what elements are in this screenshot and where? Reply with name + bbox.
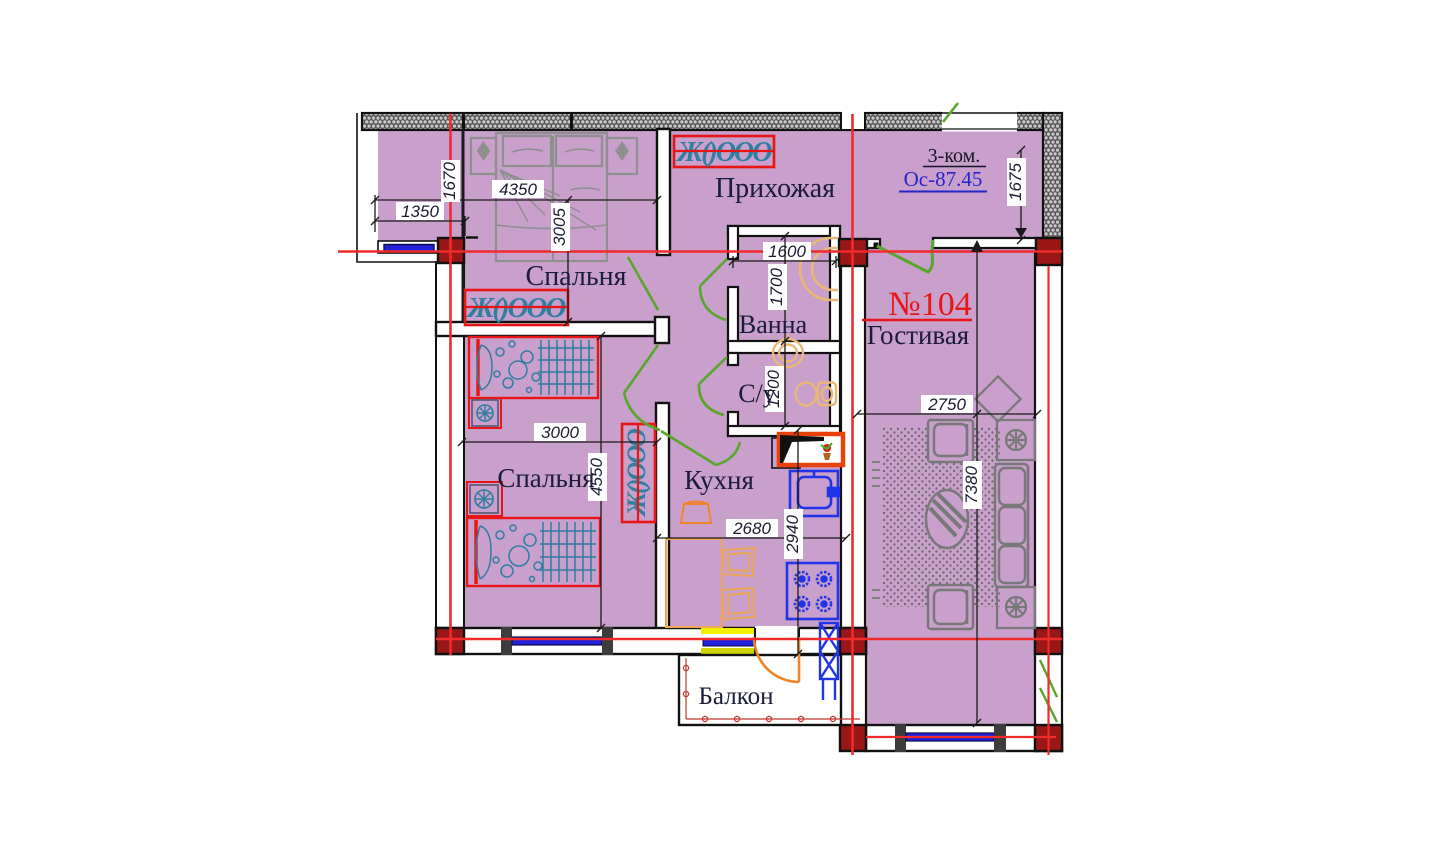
svg-text:3-ком.: 3-ком. <box>928 145 981 167</box>
svg-text:Спальня: Спальня <box>497 463 594 493</box>
svg-text:4350: 4350 <box>499 180 537 199</box>
svg-text:7380: 7380 <box>962 466 981 504</box>
svg-text:1670: 1670 <box>440 162 459 200</box>
svg-text:Ж()ООО: Ж()ООО <box>675 137 772 168</box>
svg-text:Ванна: Ванна <box>739 310 808 339</box>
svg-text:Кухня: Кухня <box>684 465 754 495</box>
svg-text:3005: 3005 <box>550 208 569 246</box>
svg-text:Ос-87.45: Ос-87.45 <box>904 167 983 191</box>
svg-text:Гостивая: Гостивая <box>867 320 969 350</box>
svg-text:Спальня: Спальня <box>526 261 627 292</box>
svg-text:1700: 1700 <box>767 268 786 306</box>
svg-text:1675: 1675 <box>1006 163 1025 201</box>
svg-text:С/у: С/у <box>738 379 776 408</box>
svg-text:1600: 1600 <box>768 242 806 261</box>
svg-text:Прихожая: Прихожая <box>715 173 835 204</box>
svg-text:3000: 3000 <box>541 423 579 442</box>
svg-text:2680: 2680 <box>732 519 771 538</box>
svg-text:Балкон: Балкон <box>699 683 774 710</box>
svg-text:1350: 1350 <box>401 202 439 221</box>
svg-text:2750: 2750 <box>927 395 966 414</box>
svg-text:№104: №104 <box>888 286 971 323</box>
svg-text:2940: 2940 <box>783 515 802 554</box>
